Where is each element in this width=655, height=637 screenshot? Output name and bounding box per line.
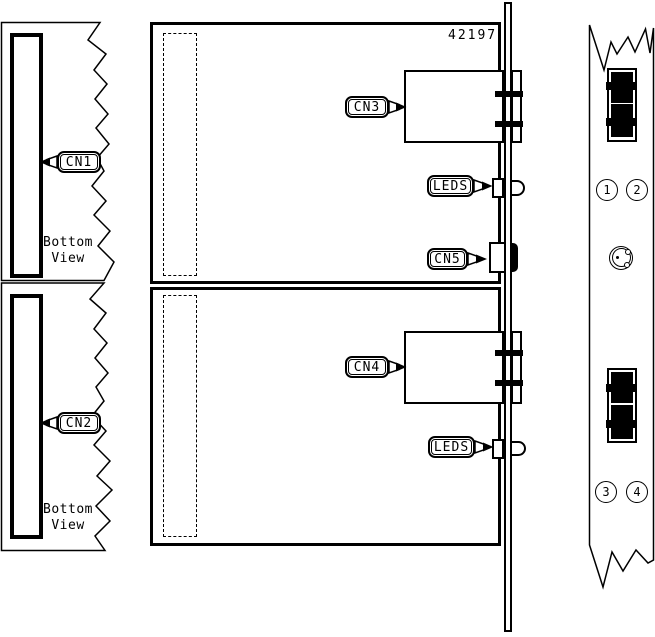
mounting-tab [495, 91, 523, 97]
bottom-view-upper-line2: View [51, 251, 84, 266]
module-box-lower [150, 287, 501, 546]
bottom-view-label-upper: BottomView [36, 235, 100, 267]
port-number-1: 1 [596, 179, 618, 201]
callout-cn1-label: CN1 [60, 154, 98, 170]
led-lower-dome [510, 441, 526, 456]
mounting-tab [495, 121, 523, 127]
port-number-4: 4 [626, 481, 648, 503]
led-upper-base [492, 178, 504, 198]
rj-jack-port4 [611, 405, 633, 439]
din-connector-notch [624, 262, 630, 268]
callout-cn5-label: CN5 [430, 251, 465, 267]
connector-cn4-body [404, 331, 504, 404]
port-number-2-label: 2 [633, 184, 640, 196]
jack-latch [606, 118, 611, 126]
jack-latch [632, 82, 637, 90]
callout-cn4-label: CN4 [348, 359, 386, 375]
led-lower-base [492, 439, 504, 459]
port-number-4-label: 4 [633, 486, 640, 498]
callout-leds-lower-label: LEDS [431, 439, 472, 455]
bottom-view-label-lower: BottomView [36, 502, 100, 534]
callout-leds-upper: LEDS [427, 175, 474, 197]
callout-cn1: CN1 [57, 151, 101, 173]
callout-cn5: CN5 [427, 248, 468, 270]
pointer-flag-cn1 [47, 156, 57, 168]
jack-latch [606, 82, 611, 90]
rj-jack-port1 [611, 72, 633, 103]
callout-cn3-label: CN3 [348, 99, 386, 115]
port-number-3-label: 3 [602, 486, 609, 498]
callout-leds-upper-label: LEDS [430, 178, 471, 194]
port-number-1-label: 1 [603, 184, 610, 196]
jack-latch [606, 384, 611, 392]
connector-cn4-rear [511, 331, 522, 404]
mounting-tab [495, 350, 523, 356]
bottom-view-lower-line1: Bottom [43, 502, 93, 517]
connector-cn5-body [489, 242, 506, 273]
connector-cn3-body [404, 70, 504, 143]
jack-latch [632, 118, 637, 126]
rj-jack-port2 [611, 104, 633, 137]
callout-cn2-label: CN2 [60, 415, 98, 431]
hardware-diagram: BottomView BottomView 42197 1 2 [0, 0, 655, 637]
callout-cn4: CN4 [345, 356, 389, 378]
bottom-view-upper-line1: Bottom [43, 235, 93, 250]
din-connector-notch [625, 249, 631, 255]
jack-latch [632, 420, 637, 428]
callout-leds-lower: LEDS [428, 436, 475, 458]
pointer-flag-cn2 [47, 417, 57, 429]
dashed-connector-footprint-upper [163, 33, 197, 276]
port-number-3: 3 [595, 481, 617, 503]
callout-cn3: CN3 [345, 96, 389, 118]
module-box-upper [150, 22, 501, 284]
port-number-2: 2 [626, 179, 648, 201]
jack-latch [632, 384, 637, 392]
connector-cn3-rear [511, 70, 522, 143]
rj-jack-port3 [611, 372, 633, 403]
led-upper-dome [510, 180, 525, 196]
part-number: 42197 [448, 29, 497, 42]
callout-cn2: CN2 [57, 412, 101, 434]
bottom-view-lower-line2: View [51, 518, 84, 533]
connector-cn5-plug [510, 243, 518, 272]
mounting-tab [495, 380, 523, 386]
jack-latch [606, 420, 611, 428]
dashed-connector-footprint-lower [163, 295, 197, 537]
din-connector-pin [616, 256, 619, 259]
